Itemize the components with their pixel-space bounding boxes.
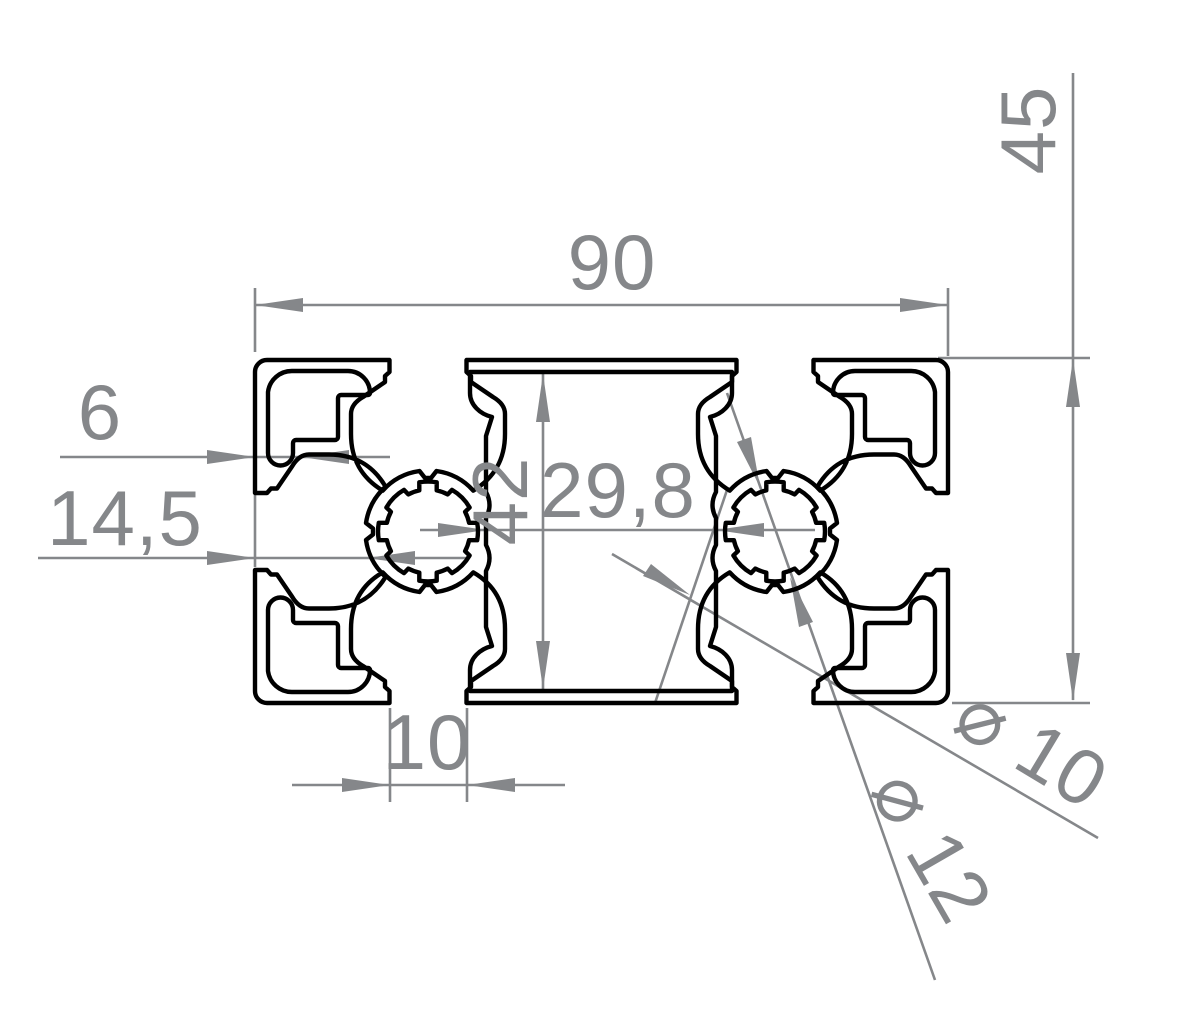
dimension-label-slot-lip-depth: 6 (78, 373, 122, 451)
dimension-label-overall-width: 90 (568, 223, 657, 301)
dimension-label-slot-center-offset: 14,5 (47, 479, 203, 557)
dimension-label-slot-opening: 10 (383, 703, 472, 781)
dimension-label-cavity-width: 29,8 (540, 451, 696, 529)
dimension-label-overall-height: 45 (989, 86, 1067, 175)
dimension-diameter-12-leader (655, 393, 935, 980)
dimension-label-cavity-height: 42 (461, 457, 539, 546)
technical-drawing-canvas: 90 45 6 14,5 42 29,8 10 ⌀ 10 ⌀ 12 (0, 0, 1200, 1009)
